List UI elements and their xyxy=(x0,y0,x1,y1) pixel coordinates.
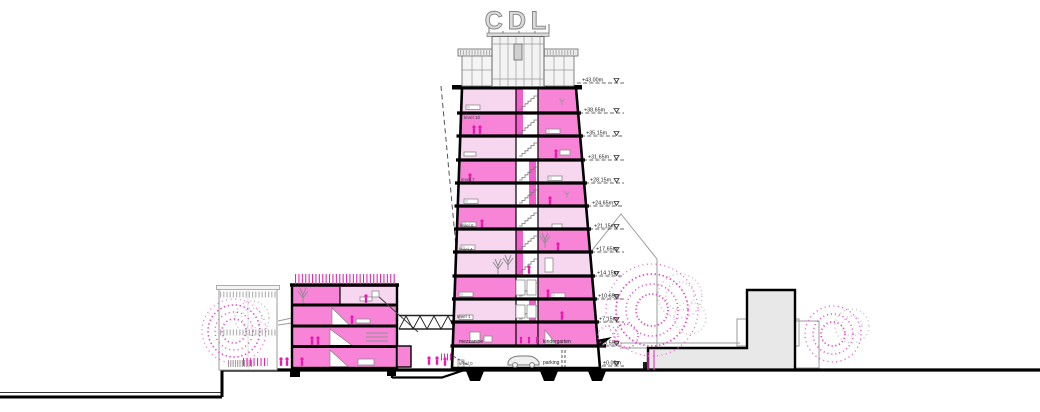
ground-line xyxy=(0,370,1040,398)
floor-label: level 4 xyxy=(459,247,473,252)
level-label: +24.65m xyxy=(592,201,614,207)
cdl-sign: CDL xyxy=(485,7,551,35)
floor-label: level 6 xyxy=(460,223,474,228)
tree-right xyxy=(805,306,869,362)
floor-label: level 0 xyxy=(459,361,473,366)
truss-bridge xyxy=(399,316,459,330)
rooftop-structure: CDL xyxy=(458,7,578,87)
floor-label: level 10 xyxy=(464,115,481,120)
section-drawing: CDL +43.00m +38.65m +35.15m +31.65m +28.… xyxy=(0,0,1040,412)
level-label: +17.65m xyxy=(596,247,618,253)
level-label: +14.15m xyxy=(597,271,619,277)
level-label: ±0.00m xyxy=(603,361,621,367)
architectural-section-canvas: CDL +43.00m +38.65m +35.15m +31.65m +28.… xyxy=(0,0,1040,412)
kindergarten-label: kindergarten xyxy=(543,339,571,345)
right-gray-building xyxy=(643,290,795,370)
level-label: +43.00m xyxy=(582,78,604,84)
left-section-building xyxy=(290,279,418,368)
level-label: +28.15m xyxy=(590,178,612,184)
parking-label: parking xyxy=(543,360,560,366)
level-label: +10.65m xyxy=(598,294,620,300)
left-background-building xyxy=(217,286,293,371)
level-label: +21.15m xyxy=(594,224,616,230)
level-label: +31.65m xyxy=(588,155,610,161)
level-label: +7.15m xyxy=(599,317,618,323)
floor-label: level 7 xyxy=(461,177,475,182)
level-label: +38.65m xyxy=(584,108,606,114)
mezzanine-label: mezzanine xyxy=(459,339,483,345)
level-label: +35.15m xyxy=(586,131,608,137)
floor-label: level 1 xyxy=(457,314,471,319)
